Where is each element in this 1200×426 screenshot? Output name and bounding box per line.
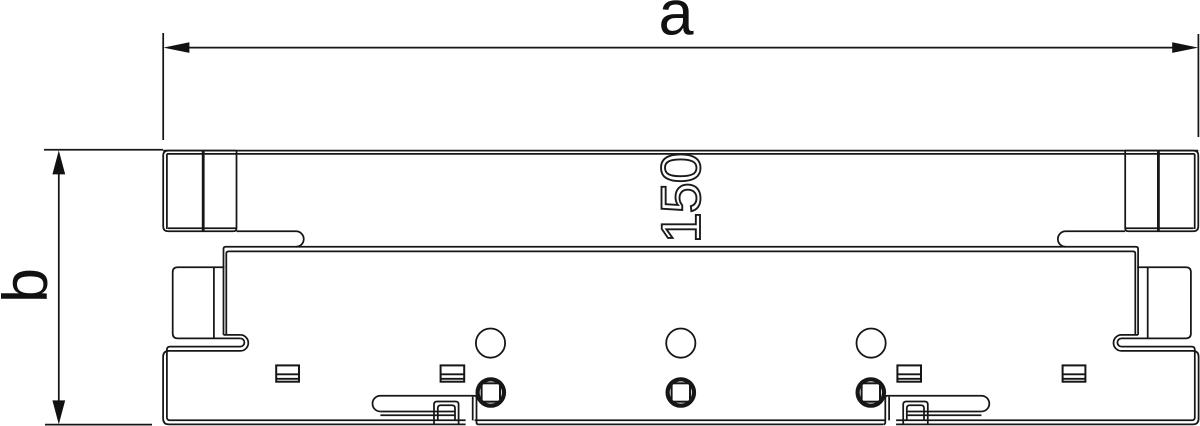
svg-text:150: 150: [649, 153, 712, 243]
svg-text:a: a: [658, 0, 694, 49]
svg-text:b: b: [0, 268, 61, 303]
